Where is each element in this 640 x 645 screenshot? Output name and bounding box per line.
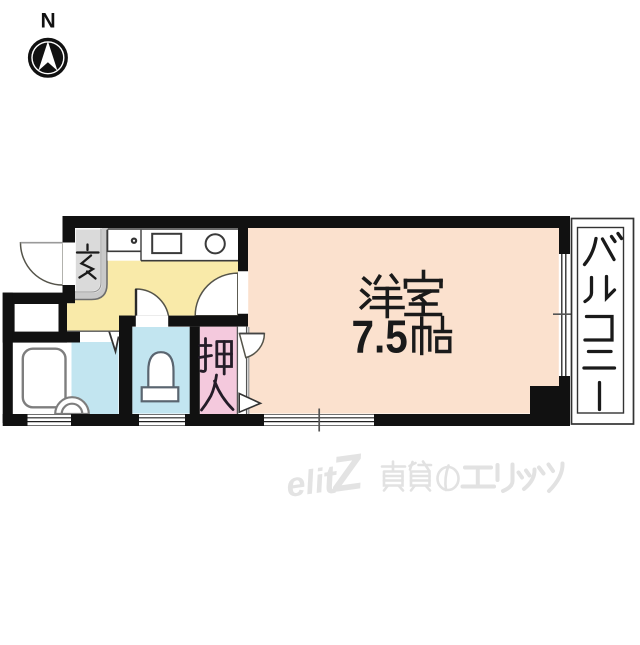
- svg-text:7.5: 7.5: [352, 312, 408, 363]
- svg-text:N: N: [41, 10, 56, 33]
